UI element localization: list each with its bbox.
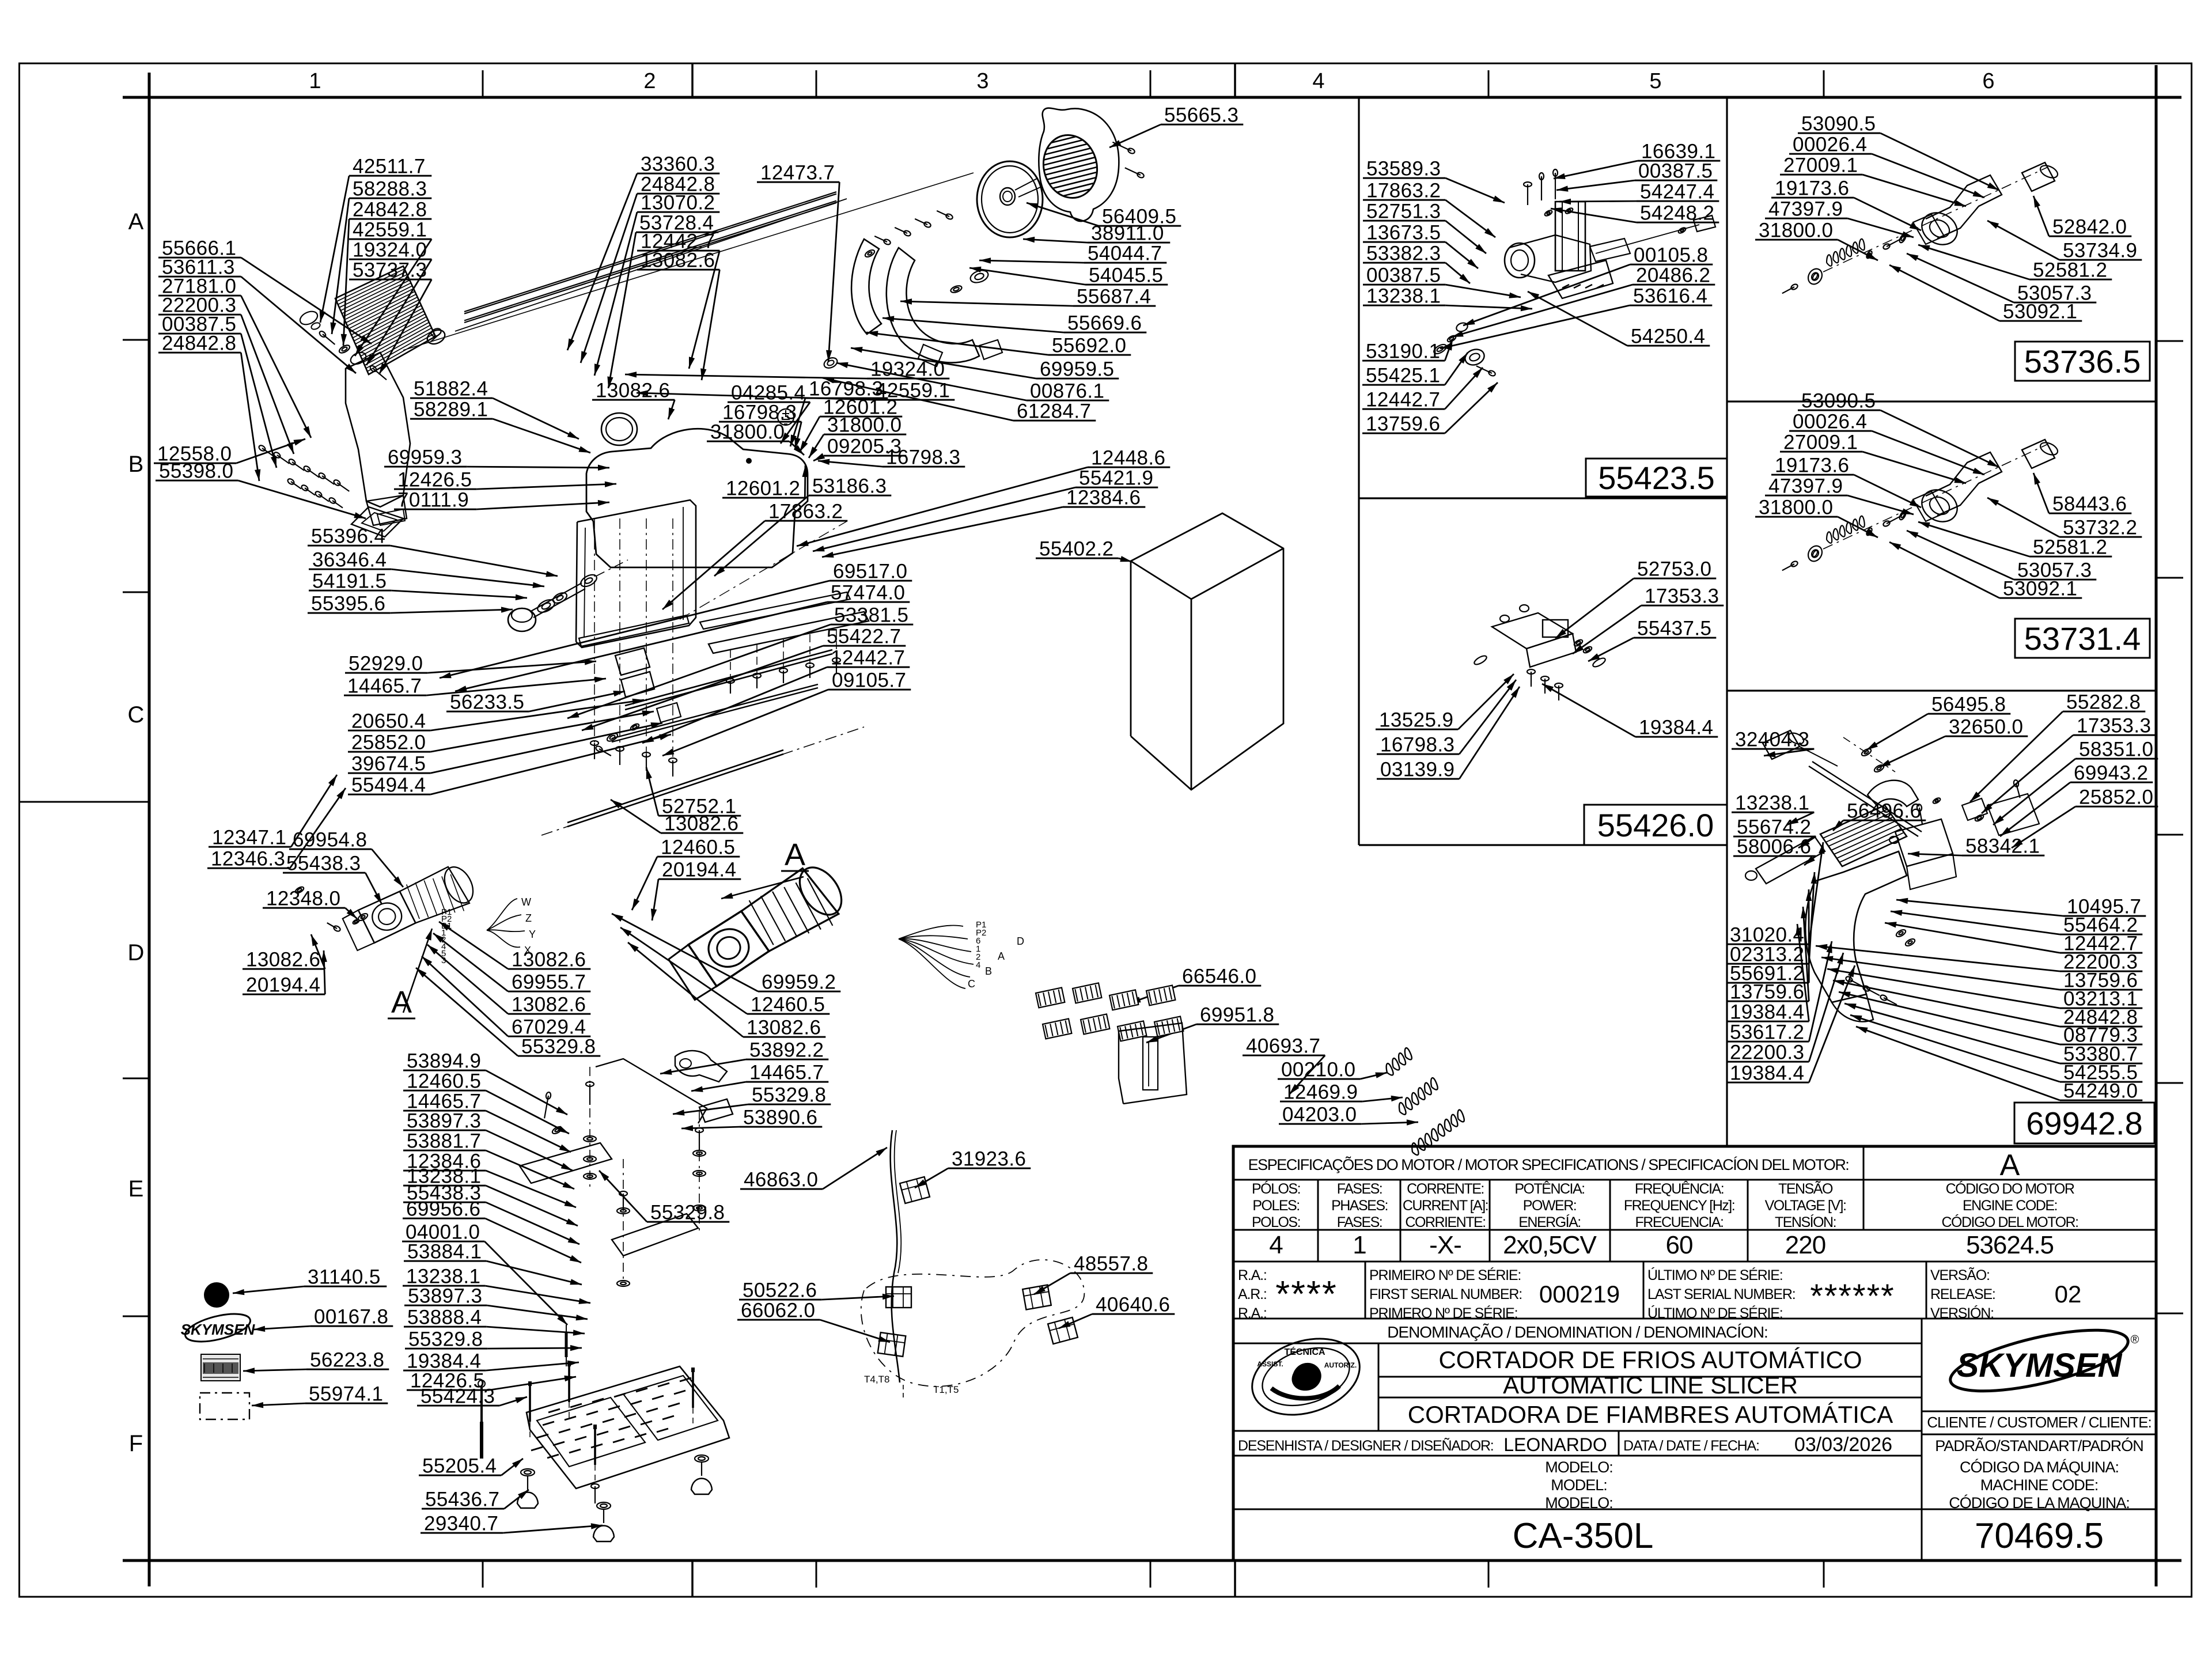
svg-text:12448.6: 12448.6 xyxy=(1091,447,1165,469)
svg-text:54044.7: 54044.7 xyxy=(1088,243,1162,265)
svg-text:25852.0: 25852.0 xyxy=(2079,786,2153,809)
svg-text:W: W xyxy=(521,896,531,908)
svg-text:31800.0: 31800.0 xyxy=(1759,219,1833,242)
svg-text:FRECUENCIA:: FRECUENCIA: xyxy=(1635,1214,1724,1230)
svg-text:55692.0: 55692.0 xyxy=(1052,335,1126,357)
svg-text:PRIMERO Nº DE SÉRIE:: PRIMERO Nº DE SÉRIE: xyxy=(1369,1305,1517,1321)
svg-text:31800.0: 31800.0 xyxy=(1759,497,1833,519)
svg-text:31800.0: 31800.0 xyxy=(827,414,902,437)
svg-text:00167.8: 00167.8 xyxy=(314,1306,388,1328)
svg-text:4: 4 xyxy=(976,960,980,970)
svg-text:54247.4: 54247.4 xyxy=(1640,181,1714,203)
svg-text:****: **** xyxy=(1275,1273,1338,1315)
svg-text:61284.7: 61284.7 xyxy=(1017,400,1091,423)
svg-text:55422.7: 55422.7 xyxy=(827,626,901,648)
svg-text:12601.2: 12601.2 xyxy=(726,478,800,500)
svg-text:53731.4: 53731.4 xyxy=(2024,620,2141,657)
svg-text:69959.2: 69959.2 xyxy=(762,971,836,994)
svg-text:54191.5: 54191.5 xyxy=(312,570,387,593)
svg-text:20486.2: 20486.2 xyxy=(1636,264,1710,287)
svg-text:MODEL:: MODEL: xyxy=(1551,1476,1607,1494)
svg-text:14465.7: 14465.7 xyxy=(749,1062,824,1084)
svg-text:ENERGÍA:: ENERGÍA: xyxy=(1518,1214,1580,1230)
svg-text:5: 5 xyxy=(1649,69,1661,93)
svg-text:40693.7: 40693.7 xyxy=(1246,1035,1320,1058)
svg-text:3: 3 xyxy=(441,956,446,965)
svg-text:00387.5: 00387.5 xyxy=(1366,264,1441,287)
svg-text:53890.6: 53890.6 xyxy=(743,1107,817,1129)
svg-text:19173.6: 19173.6 xyxy=(1775,454,1849,477)
svg-text:31923.6: 31923.6 xyxy=(952,1148,1026,1171)
svg-text:54248.2: 54248.2 xyxy=(1640,202,1714,225)
svg-text:46863.0: 46863.0 xyxy=(744,1169,818,1191)
svg-text:58443.6: 58443.6 xyxy=(2052,493,2127,516)
svg-text:53888.4: 53888.4 xyxy=(407,1306,482,1329)
svg-text:CÓDIGO DEL MOTOR:: CÓDIGO DEL MOTOR: xyxy=(1941,1214,2078,1230)
svg-text:13070.2: 13070.2 xyxy=(641,192,715,214)
svg-text:DATA / DATE / FECHA:: DATA / DATE / FECHA: xyxy=(1623,1438,1759,1454)
svg-text:CA-350L: CA-350L xyxy=(1513,1516,1654,1556)
svg-text:03/03/2026: 03/03/2026 xyxy=(1794,1434,1892,1456)
svg-text:24842.8: 24842.8 xyxy=(353,199,427,221)
svg-text:66546.0: 66546.0 xyxy=(1182,965,1256,988)
svg-text:A: A xyxy=(785,838,805,872)
svg-text:12346.3: 12346.3 xyxy=(211,848,285,870)
svg-text:55402.2: 55402.2 xyxy=(1039,538,1113,560)
svg-text:00876.1: 00876.1 xyxy=(1030,380,1104,403)
svg-text:DESENHISTA / DESIGNER / DISEÑA: DESENHISTA / DESIGNER / DISEÑADOR: xyxy=(1238,1437,1494,1454)
svg-text:52753.0: 52753.0 xyxy=(1637,558,1711,581)
svg-text:54250.4: 54250.4 xyxy=(1631,325,1705,348)
svg-text:000219: 000219 xyxy=(1539,1281,1620,1308)
svg-text:66062.0: 66062.0 xyxy=(741,1300,815,1322)
svg-text:4: 4 xyxy=(1269,1231,1283,1259)
svg-text:04203.0: 04203.0 xyxy=(1282,1104,1357,1126)
svg-text:VERSIÓN:: VERSIÓN: xyxy=(1930,1305,1994,1321)
svg-text:53090.5: 53090.5 xyxy=(1801,390,1876,412)
svg-text:55426.0: 55426.0 xyxy=(1597,807,1714,843)
svg-text:12347.1: 12347.1 xyxy=(212,827,286,849)
svg-text:A: A xyxy=(998,950,1005,962)
svg-text:FREQUÊNCIA:: FREQUÊNCIA: xyxy=(1635,1180,1724,1197)
svg-text:55395.6: 55395.6 xyxy=(311,593,385,615)
svg-text:20194.4: 20194.4 xyxy=(662,859,736,881)
svg-text:19384.4: 19384.4 xyxy=(1730,1001,1804,1024)
svg-text:SKYMSEN: SKYMSEN xyxy=(1957,1347,2123,1384)
svg-text:54249.0: 54249.0 xyxy=(2063,1080,2138,1103)
svg-text:13082.6: 13082.6 xyxy=(664,813,738,835)
svg-text:53897.3: 53897.3 xyxy=(408,1285,482,1308)
svg-text:DENOMINAÇÃO / DENOMINATION / D: DENOMINAÇÃO / DENOMINATION / DENOMINACÍO… xyxy=(1387,1323,1768,1341)
svg-text:C: C xyxy=(968,978,975,990)
svg-text:55329.8: 55329.8 xyxy=(752,1084,826,1107)
svg-text:12469.9: 12469.9 xyxy=(1283,1081,1358,1104)
svg-text:AUTOMATIC LINE SLICER: AUTOMATIC LINE SLICER xyxy=(1503,1372,1798,1399)
svg-text:POWER:: POWER: xyxy=(1523,1198,1576,1214)
svg-text:53092.1: 53092.1 xyxy=(2003,578,2077,600)
svg-text:13082.6: 13082.6 xyxy=(596,380,670,402)
svg-text:17353.3: 17353.3 xyxy=(2077,715,2151,737)
svg-text:31800.0: 31800.0 xyxy=(710,421,785,444)
svg-text:12426.5: 12426.5 xyxy=(397,469,472,491)
svg-text:TENSÃO: TENSÃO xyxy=(1778,1180,1833,1197)
svg-text:A: A xyxy=(391,985,412,1020)
svg-text:53897.3: 53897.3 xyxy=(407,1110,481,1132)
svg-text:FREQUENCY [Hz]:: FREQUENCY [Hz]: xyxy=(1624,1198,1734,1214)
svg-text:AUTORIZ.: AUTORIZ. xyxy=(1324,1361,1357,1369)
svg-text:02: 02 xyxy=(2055,1281,2082,1308)
svg-text:58288.3: 58288.3 xyxy=(353,178,427,200)
svg-text:MODELO:: MODELO: xyxy=(1545,1459,1613,1476)
svg-text:53092.1: 53092.1 xyxy=(2003,301,2077,323)
svg-text:53884.1: 53884.1 xyxy=(407,1241,482,1263)
svg-text:69956.6: 69956.6 xyxy=(406,1198,480,1221)
svg-text:24842.8: 24842.8 xyxy=(162,332,236,355)
svg-text:42559.1: 42559.1 xyxy=(353,219,427,241)
svg-text:27009.1: 27009.1 xyxy=(1783,431,1858,454)
svg-text:20650.4: 20650.4 xyxy=(351,710,426,733)
svg-text:38911.0: 38911.0 xyxy=(1091,222,1164,245)
svg-text:2x0,5CV: 2x0,5CV xyxy=(1503,1231,1597,1259)
svg-text:PÓLOS:: PÓLOS: xyxy=(1252,1180,1300,1197)
svg-text:12384.6: 12384.6 xyxy=(1066,487,1141,509)
svg-text:53589.3: 53589.3 xyxy=(1366,158,1441,180)
svg-text:70469.5: 70469.5 xyxy=(1975,1516,2104,1556)
svg-text:55424.3: 55424.3 xyxy=(421,1385,495,1408)
svg-text:13238.1: 13238.1 xyxy=(1366,285,1441,308)
svg-text:PHASES:: PHASES: xyxy=(1331,1198,1388,1214)
svg-text:55329.8: 55329.8 xyxy=(521,1036,596,1058)
svg-text:19384.4: 19384.4 xyxy=(1639,717,1713,739)
svg-text:25852.0: 25852.0 xyxy=(351,732,426,754)
svg-text:FASES:: FASES: xyxy=(1337,1181,1382,1197)
svg-text:48557.8: 48557.8 xyxy=(1074,1253,1148,1275)
svg-text:SKYMSEN: SKYMSEN xyxy=(181,1321,256,1338)
svg-text:CURRENT [A]:: CURRENT [A]: xyxy=(1403,1198,1488,1214)
svg-text:56495.8: 56495.8 xyxy=(1931,694,2006,716)
svg-text:220: 220 xyxy=(1785,1231,1825,1259)
svg-text:55423.5: 55423.5 xyxy=(1598,460,1714,496)
svg-text:6: 6 xyxy=(1982,69,1994,93)
svg-text:00387.5: 00387.5 xyxy=(1638,160,1713,183)
svg-text:55329.8: 55329.8 xyxy=(650,1202,725,1224)
svg-text:1: 1 xyxy=(309,69,321,93)
svg-text:12442.7: 12442.7 xyxy=(1366,389,1440,411)
svg-text:42511.7: 42511.7 xyxy=(353,156,426,178)
svg-text:®: ® xyxy=(2131,1334,2139,1346)
svg-text:14465.7: 14465.7 xyxy=(347,675,422,698)
svg-text:53892.2: 53892.2 xyxy=(749,1039,824,1062)
svg-text:CORTADORA DE FIAMBRES AUTOMÁTI: CORTADORA DE FIAMBRES AUTOMÁTICA xyxy=(1408,1401,1893,1428)
svg-text:CORRIENTE:: CORRIENTE: xyxy=(1405,1214,1485,1230)
svg-text:******: ****** xyxy=(1810,1278,1895,1315)
svg-text:39674.5: 39674.5 xyxy=(351,753,426,775)
svg-text:TENSÍON:: TENSÍON: xyxy=(1775,1214,1836,1230)
svg-text:69955.7: 69955.7 xyxy=(512,971,586,994)
svg-text:VOLTAGE [V]:: VOLTAGE [V]: xyxy=(1765,1198,1846,1214)
svg-text:00105.8: 00105.8 xyxy=(1634,244,1708,267)
svg-text:PRIMEIRO Nº DE SÉRIE:: PRIMEIRO Nº DE SÉRIE: xyxy=(1369,1267,1521,1283)
svg-text:55436.7: 55436.7 xyxy=(425,1488,499,1511)
svg-text:13082.6: 13082.6 xyxy=(246,949,320,971)
svg-text:32650.0: 32650.0 xyxy=(1949,716,2023,738)
svg-text:MACHINE CODE:: MACHINE CODE: xyxy=(1980,1476,2099,1494)
svg-text:19324.0: 19324.0 xyxy=(353,239,427,262)
svg-text:55438.3: 55438.3 xyxy=(286,853,361,875)
svg-text:13082.6: 13082.6 xyxy=(512,994,586,1016)
svg-text:R.A.:: R.A.: xyxy=(1238,1267,1267,1283)
svg-text:69959.3: 69959.3 xyxy=(388,446,462,469)
svg-text:12460.5: 12460.5 xyxy=(407,1070,481,1093)
svg-text:1: 1 xyxy=(1353,1231,1366,1259)
svg-text:00026.4: 00026.4 xyxy=(1793,411,1867,433)
svg-text:36346.4: 36346.4 xyxy=(312,549,387,571)
svg-text:CORTADOR DE FRIOS AUTOMÁTICO: CORTADOR DE FRIOS AUTOMÁTICO xyxy=(1438,1346,1862,1373)
svg-text:3: 3 xyxy=(976,69,988,93)
svg-text:53190.1: 53190.1 xyxy=(1366,340,1440,363)
svg-text:ÚLTIMO Nº DE SÉRIE:: ÚLTIMO Nº DE SÉRIE: xyxy=(1647,1305,1783,1321)
svg-text:13673.5: 13673.5 xyxy=(1366,222,1441,244)
svg-text:B: B xyxy=(985,965,992,977)
svg-text:PADRÃO/STANDART/PADRÓN: PADRÃO/STANDART/PADRÓN xyxy=(1935,1437,2143,1455)
svg-text:13082.6: 13082.6 xyxy=(512,949,586,971)
svg-text:55398.0: 55398.0 xyxy=(159,460,233,483)
svg-text:58289.1: 58289.1 xyxy=(414,399,488,421)
svg-text:31140.5: 31140.5 xyxy=(308,1266,381,1289)
svg-text:53624.5: 53624.5 xyxy=(1966,1231,2054,1259)
svg-text:53616.4: 53616.4 xyxy=(1633,285,1707,308)
svg-text:FASES:: FASES: xyxy=(1337,1214,1382,1230)
svg-text:56233.5: 56233.5 xyxy=(450,691,524,714)
svg-text:53382.3: 53382.3 xyxy=(1366,243,1441,265)
svg-text:TÉCNICA: TÉCNICA xyxy=(1284,1346,1325,1357)
svg-text:CLIENTE / CUSTOMER / CLIENTE:: CLIENTE / CUSTOMER / CLIENTE: xyxy=(1927,1414,2151,1431)
svg-text:55329.8: 55329.8 xyxy=(408,1328,483,1351)
svg-text:00026.4: 00026.4 xyxy=(1793,134,1867,156)
svg-text:55205.4: 55205.4 xyxy=(422,1455,497,1478)
svg-text:13238.1: 13238.1 xyxy=(1735,792,1809,815)
svg-text:T1,T5: T1,T5 xyxy=(933,1384,959,1395)
svg-text:CÓDIGO DE LA MAQUINA:: CÓDIGO DE LA MAQUINA: xyxy=(1949,1494,2130,1512)
svg-text:A: A xyxy=(2000,1149,2020,1182)
svg-text:ESPECIFICAÇÕES DO MOTOR / MOTO: ESPECIFICAÇÕES DO MOTOR / MOTOR SPECIFIC… xyxy=(1248,1156,1849,1173)
svg-text:55494.4: 55494.4 xyxy=(351,774,426,797)
svg-text:MODELO:: MODELO: xyxy=(1545,1494,1613,1512)
svg-text:CÓDIGO DA MÁQUINA:: CÓDIGO DA MÁQUINA: xyxy=(1960,1458,2119,1476)
svg-text:58351.0: 58351.0 xyxy=(2079,738,2153,761)
svg-text:58006.6: 58006.6 xyxy=(1737,836,1811,858)
svg-text:LEONARDO: LEONARDO xyxy=(1503,1434,1607,1455)
svg-text:12460.5: 12460.5 xyxy=(661,836,735,859)
svg-text:-X-: -X- xyxy=(1429,1231,1461,1259)
svg-text:55687.4: 55687.4 xyxy=(1077,286,1151,308)
svg-text:17353.3: 17353.3 xyxy=(1645,585,1719,608)
svg-text:27009.1: 27009.1 xyxy=(1783,154,1858,177)
svg-text:CORRENTE:: CORRENTE: xyxy=(1407,1181,1484,1197)
svg-text:T4,T8: T4,T8 xyxy=(864,1374,889,1385)
svg-text:53737.3: 53737.3 xyxy=(353,259,427,282)
svg-text:60: 60 xyxy=(1666,1231,1693,1259)
svg-text:69954.8: 69954.8 xyxy=(293,829,367,851)
svg-text:51882.4: 51882.4 xyxy=(414,378,488,400)
svg-text:70111.9: 70111.9 xyxy=(397,489,469,512)
svg-text:69943.2: 69943.2 xyxy=(2074,762,2148,785)
svg-text:22200.3: 22200.3 xyxy=(1730,1041,1804,1064)
svg-text:19173.6: 19173.6 xyxy=(1775,177,1849,200)
svg-text:56223.8: 56223.8 xyxy=(310,1349,384,1372)
svg-text:47397.9: 47397.9 xyxy=(1768,198,1843,221)
svg-text:12348.0: 12348.0 xyxy=(266,888,340,910)
svg-text:E: E xyxy=(128,1176,144,1202)
svg-text:VERSÃO:: VERSÃO: xyxy=(1930,1267,1990,1283)
svg-text:52842.0: 52842.0 xyxy=(2052,216,2127,238)
svg-text:00210.0: 00210.0 xyxy=(1281,1059,1355,1081)
svg-text:LAST SERIAL NUMBER:: LAST SERIAL NUMBER: xyxy=(1647,1286,1795,1302)
svg-text:17863.2: 17863.2 xyxy=(1366,180,1441,202)
svg-text:POLOS:: POLOS: xyxy=(1252,1214,1300,1230)
svg-text:40640.6: 40640.6 xyxy=(1096,1294,1170,1316)
svg-text:53736.5: 53736.5 xyxy=(2024,343,2141,380)
svg-text:4: 4 xyxy=(1312,69,1324,93)
svg-text:55437.5: 55437.5 xyxy=(1637,618,1711,640)
svg-text:Y: Y xyxy=(529,929,536,940)
svg-text:53186.3: 53186.3 xyxy=(812,475,887,498)
svg-text:X: X xyxy=(524,945,531,956)
svg-text:58342.1: 58342.1 xyxy=(1965,835,2040,858)
svg-text:13525.9: 13525.9 xyxy=(1379,709,1453,732)
svg-text:19384.4: 19384.4 xyxy=(1730,1062,1804,1085)
svg-text:POLES:: POLES: xyxy=(1252,1198,1299,1214)
svg-text:16798.3: 16798.3 xyxy=(1380,734,1455,756)
svg-text:12473.7: 12473.7 xyxy=(760,162,835,184)
svg-text:55396.4: 55396.4 xyxy=(311,525,385,548)
svg-text:55282.8: 55282.8 xyxy=(2066,691,2141,714)
svg-text:D: D xyxy=(1017,935,1024,947)
svg-text:52929.0: 52929.0 xyxy=(349,653,423,675)
svg-text:13082.6: 13082.6 xyxy=(747,1017,821,1039)
svg-text:55974.1: 55974.1 xyxy=(309,1383,383,1406)
svg-text:20194.4: 20194.4 xyxy=(246,974,320,997)
svg-text:2: 2 xyxy=(643,69,656,93)
svg-text:53894.9: 53894.9 xyxy=(407,1050,481,1073)
svg-text:55669.6: 55669.6 xyxy=(1067,312,1142,335)
svg-text:ÚLTIMO Nº DE SÉRIE:: ÚLTIMO Nº DE SÉRIE: xyxy=(1647,1267,1783,1283)
svg-text:16798.3: 16798.3 xyxy=(886,446,960,469)
svg-text:12460.5: 12460.5 xyxy=(751,994,825,1016)
svg-text:52751.3: 52751.3 xyxy=(1366,200,1441,223)
svg-text:09105.7: 09105.7 xyxy=(832,669,906,692)
svg-text:55665.3: 55665.3 xyxy=(1164,104,1238,127)
svg-text:D: D xyxy=(128,940,145,965)
svg-text:55425.1: 55425.1 xyxy=(1366,365,1440,387)
svg-text:A: A xyxy=(128,209,144,234)
svg-text:69959.5: 69959.5 xyxy=(1040,358,1114,381)
svg-text:13759.6: 13759.6 xyxy=(1366,413,1440,435)
svg-text:53881.7: 53881.7 xyxy=(407,1130,481,1153)
svg-text:52581.2: 52581.2 xyxy=(2033,259,2107,282)
svg-text:A.R.:: A.R.: xyxy=(1238,1286,1267,1302)
svg-text:52581.2: 52581.2 xyxy=(2033,536,2107,559)
svg-text:R.A.:: R.A.: xyxy=(1238,1305,1267,1321)
svg-text:54045.5: 54045.5 xyxy=(1089,264,1163,287)
svg-text:69951.8: 69951.8 xyxy=(1200,1004,1274,1027)
svg-text:47397.9: 47397.9 xyxy=(1768,475,1843,498)
svg-text:69517.0: 69517.0 xyxy=(833,560,907,583)
svg-text:03139.9: 03139.9 xyxy=(1380,759,1455,781)
svg-text:CÓDIGO DO MOTOR: CÓDIGO DO MOTOR xyxy=(1946,1180,2074,1197)
svg-text:RELEASE:: RELEASE: xyxy=(1930,1286,1995,1302)
svg-text:12442.7: 12442.7 xyxy=(831,647,905,669)
svg-text:13759.6: 13759.6 xyxy=(1730,981,1804,1003)
svg-text:53090.5: 53090.5 xyxy=(1801,113,1876,135)
svg-text:FIRST SERIAL NUMBER:: FIRST SERIAL NUMBER: xyxy=(1369,1286,1522,1302)
svg-text:33360.3: 33360.3 xyxy=(641,153,715,176)
svg-text:29340.7: 29340.7 xyxy=(424,1513,498,1535)
svg-text:53617.2: 53617.2 xyxy=(1730,1021,1804,1044)
svg-text:ASSIST.: ASSIST. xyxy=(1257,1360,1283,1368)
svg-text:50522.6: 50522.6 xyxy=(743,1279,817,1302)
svg-text:F: F xyxy=(129,1431,143,1456)
svg-text:C: C xyxy=(128,702,145,728)
svg-text:Z: Z xyxy=(525,912,532,924)
svg-text:B: B xyxy=(128,452,144,477)
svg-text:69942.8: 69942.8 xyxy=(2026,1105,2142,1142)
svg-text:POTÊNCIA:: POTÊNCIA: xyxy=(1514,1180,1584,1197)
svg-text:ENGINE CODE:: ENGINE CODE: xyxy=(1963,1198,2057,1214)
